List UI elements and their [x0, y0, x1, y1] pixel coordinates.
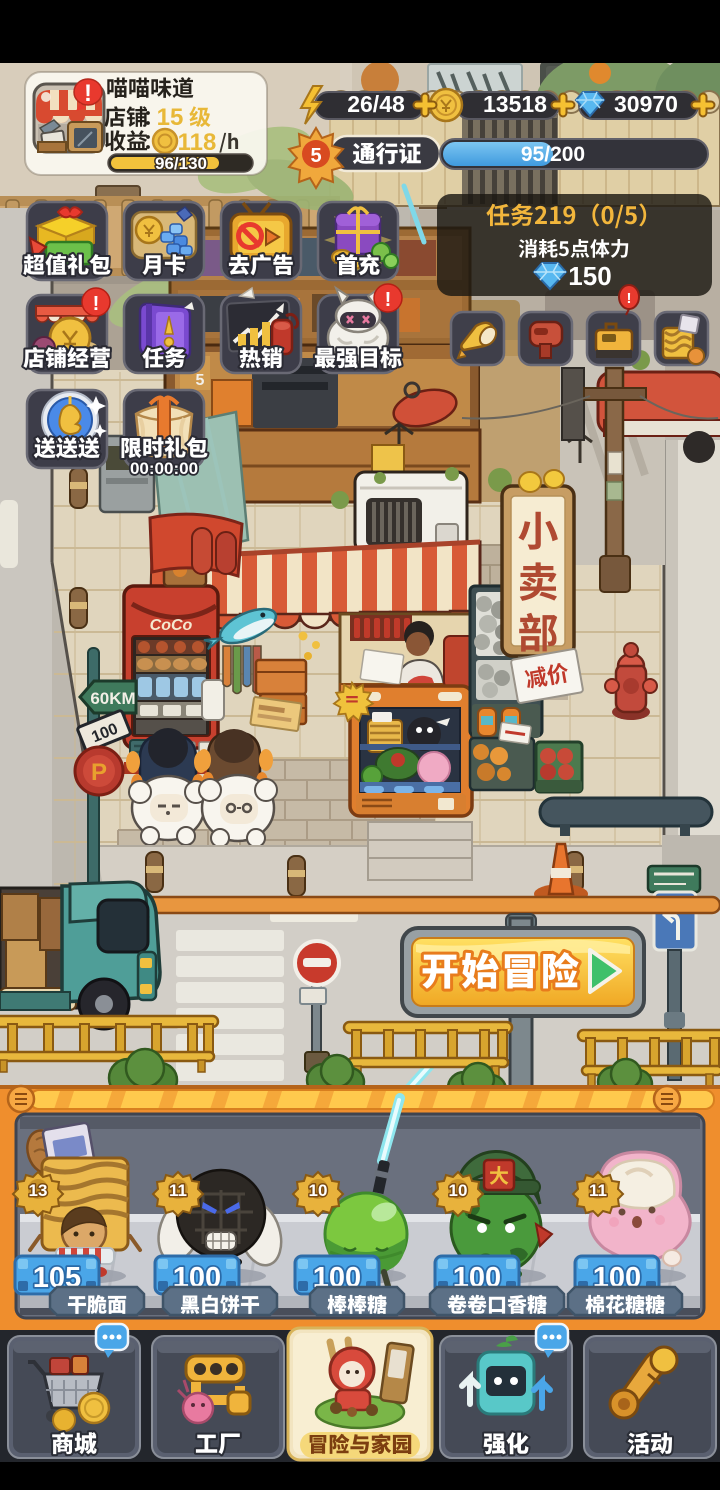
svg-text:15: 15 — [157, 104, 184, 131]
svg-text:118: 118 — [178, 129, 217, 156]
svg-text:10: 10 — [449, 1181, 468, 1200]
svg-text:96/130: 96/130 — [155, 154, 207, 173]
svg-text:30970: 30970 — [614, 91, 678, 117]
svg-text:95/200: 95/200 — [521, 143, 585, 166]
svg-text:13518: 13518 — [483, 91, 547, 117]
svg-text:P: P — [91, 759, 107, 786]
svg-text:!: ! — [385, 289, 392, 311]
svg-text:60KM: 60KM — [90, 689, 135, 708]
svg-text:00:00:00: 00:00:00 — [130, 459, 198, 478]
svg-text:26/48: 26/48 — [347, 91, 405, 117]
svg-text:5: 5 — [310, 145, 321, 167]
svg-text:!: ! — [627, 290, 632, 307]
svg-text:11: 11 — [589, 1181, 607, 1200]
svg-text:5: 5 — [196, 372, 205, 389]
svg-text:150: 150 — [568, 261, 611, 291]
svg-text:!: ! — [93, 293, 100, 315]
svg-text:CoCo: CoCo — [150, 617, 193, 634]
svg-text:!: ! — [84, 80, 92, 107]
svg-text:13: 13 — [29, 1181, 48, 1200]
svg-text:10: 10 — [309, 1181, 328, 1200]
svg-text:11: 11 — [169, 1181, 187, 1200]
